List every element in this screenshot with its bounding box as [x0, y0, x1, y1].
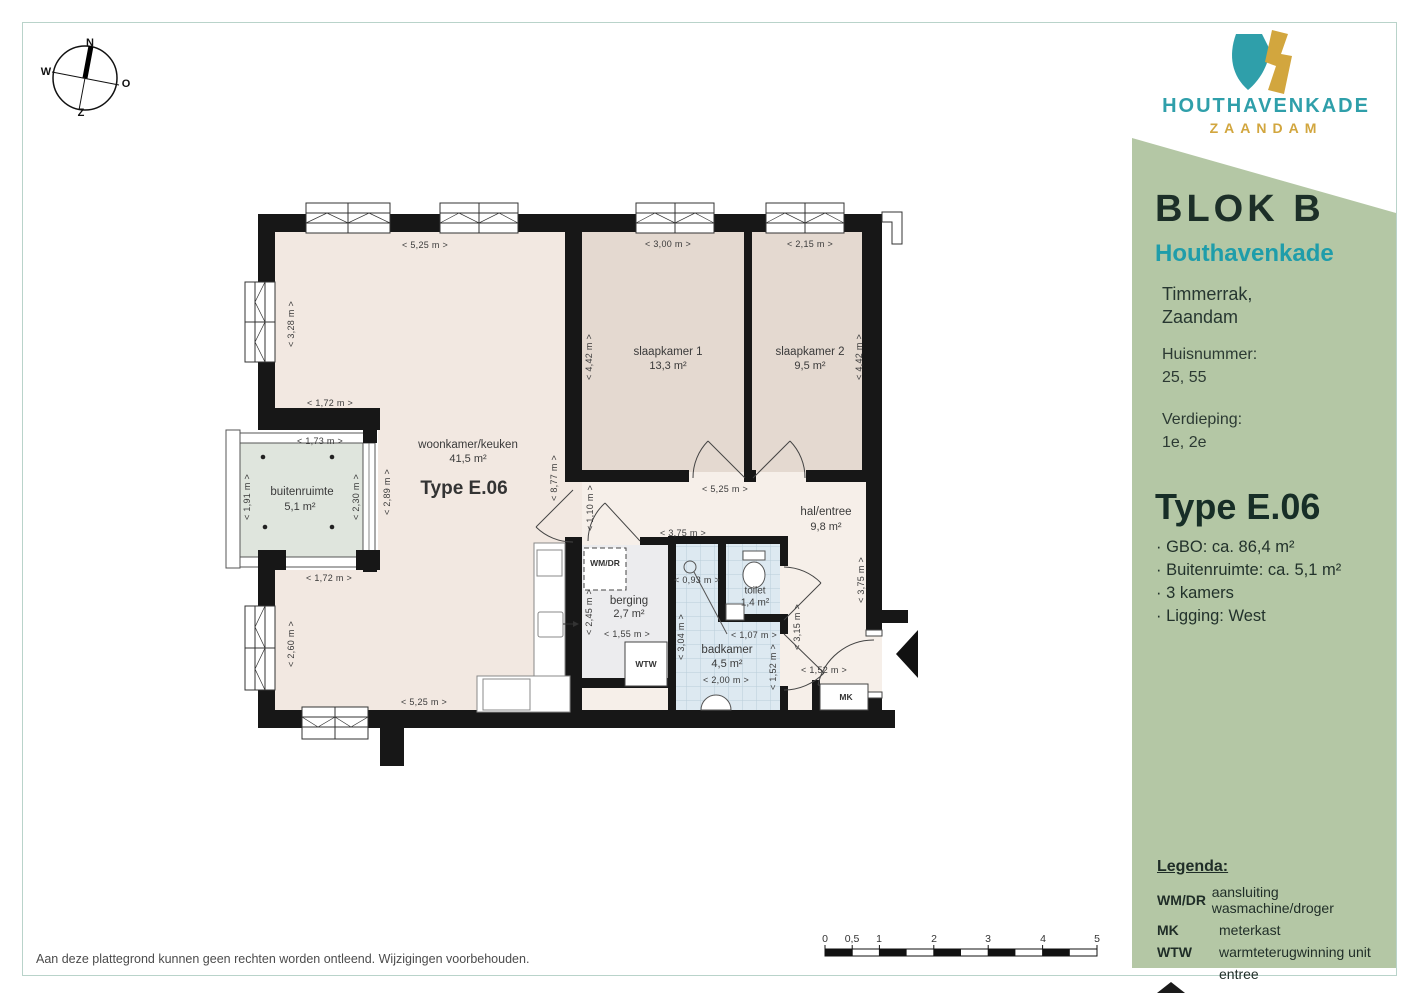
room-area-toilet: 1,4 m² [741, 598, 769, 609]
compass-south-label: Z [78, 107, 85, 119]
spec-buitenruimte: · Buitenruimte: ca. 5,1 m² [1156, 559, 1341, 582]
legend-desc-mk: meterkast [1219, 922, 1280, 938]
dim-balkon-boven: < 1,72 m > [307, 398, 353, 408]
logo-wordmark: HOUTHAVENKADE [1140, 95, 1392, 118]
huisnummer-value: 25, 55 [1162, 369, 1206, 387]
room-area-slaapkamer1: 13,3 m² [649, 360, 686, 372]
scale-bar: 0 0,5 1 2 3 4 5 [818, 933, 1108, 963]
verdieping-label: Verdieping: [1162, 411, 1242, 429]
project-location: Timmerrak, Zaandam [1162, 283, 1252, 329]
dim-douche-breedte: < 0,93 m > [674, 575, 720, 585]
fixture-label-wtw: WTW [635, 659, 656, 669]
compass-west-label: W [41, 66, 51, 78]
spec-gbo: · GBO: ca. 86,4 m² [1156, 536, 1341, 559]
dim-balkon-hoogte: < 2,89 m > [382, 469, 392, 515]
dim-top-woonkamer: < 5,25 m > [402, 240, 448, 250]
room-area-slaapkamer2: 9,5 m² [794, 360, 825, 372]
logo-city: ZAANDAM [1140, 120, 1392, 136]
scale-label-1: 1 [876, 933, 882, 945]
dim-berging-hoogte: < 2,45 m > [584, 589, 594, 635]
dim-hal-rechts: < 3,75 m > [856, 557, 866, 603]
spec-ligging: · Ligging: West [1156, 605, 1341, 628]
legend-desc-entree: entree [1219, 966, 1259, 982]
dim-balkon-rechts: < 2,30 m > [351, 474, 361, 520]
room-area-badkamer: 4,5 m² [711, 658, 742, 670]
compass-east-label: O [122, 78, 131, 90]
legend-key-mk: MK [1157, 922, 1219, 938]
legend-row-entree: entree [1157, 966, 1382, 982]
room-area-woonkamer: 41,5 m² [449, 453, 486, 465]
dim-top-slaapkamer1: < 3,00 m > [645, 239, 691, 249]
dim-bottom-woonkamer: < 5,25 m > [401, 697, 447, 707]
dim-badkamer-hoogte: < 3,04 m > [676, 614, 686, 660]
scale-label-3: 3 [985, 933, 991, 945]
legend-row-wtw: WTW warmteterugwinning unit [1157, 944, 1382, 960]
spec-kamers: · 3 kamers [1156, 582, 1341, 605]
legend-row-wmdr: WM/DR aansluiting wasmachine/droger [1157, 884, 1382, 916]
dim-slaapkamer1-hoogte: < 4,42 m > [584, 334, 594, 380]
disclaimer-text: Aan deze plattegrond kunnen geen rechten… [36, 952, 529, 966]
dim-badkamer-rechts: < 1,52 m > [768, 644, 778, 690]
dim-left-onder: < 2,60 m > [286, 621, 296, 667]
dim-slaapkamer2-hoogte: < 4,42 m > [854, 334, 864, 380]
type-specs: · GBO: ca. 86,4 m² · Buitenruimte: ca. 5… [1156, 536, 1341, 628]
dim-balkon-links: < 1,91 m > [242, 474, 252, 520]
room-label-woonkamer: woonkamer/keuken [418, 439, 518, 451]
room-label-slaapkamer2: slaapkamer 2 [775, 346, 844, 358]
dim-badkamer-boven: < 1,07 m > [731, 630, 777, 640]
legend-key-wmdr: WM/DR [1157, 892, 1212, 908]
legend: Legenda: WM/DR aansluiting wasmachine/dr… [1157, 858, 1382, 988]
room-label-toilet: toilet [744, 586, 765, 597]
verdieping-value: 1e, 2e [1162, 434, 1206, 452]
dim-badkamer-onder: < 2,00 m > [703, 675, 749, 685]
huisnummer-label: Huisnummer: [1162, 346, 1257, 364]
scale-label-0: 0 [822, 933, 828, 945]
scale-label-5: 5 [1094, 933, 1100, 945]
compass-rose [52, 46, 119, 110]
dim-hal-midden: < 3,15 m > [792, 604, 802, 650]
room-label-hal: hal/entree [800, 506, 851, 518]
dim-entree-breedte: < 1,52 m > [801, 665, 847, 675]
entree-arrow-icon [896, 630, 918, 678]
room-area-hal: 9,8 m² [810, 521, 841, 533]
dim-left-boven: < 3,28 m > [286, 301, 296, 347]
scale-label-4: 4 [1040, 933, 1046, 945]
fixture-label-mk: MK [839, 692, 852, 702]
legend-row-mk: MK meterkast [1157, 922, 1382, 938]
dim-berging-breedte: < 1,55 m > [604, 629, 650, 639]
compass-north-label: N [86, 37, 94, 49]
block-title: BLOK B [1155, 188, 1325, 231]
room-label-berging: berging [610, 595, 648, 607]
scale-label-05: 0,5 [845, 933, 860, 945]
dim-balkon-onder: < 1,72 m > [306, 573, 352, 583]
scale-bar-graphic [818, 945, 1108, 963]
dim-hal-links: < 1,10 m > [585, 485, 595, 531]
entree-triangle-icon [1157, 966, 1219, 982]
plan-type-label: Type E.06 [420, 478, 507, 500]
room-label-slaapkamer1: slaapkamer 1 [633, 346, 702, 358]
dim-top-slaapkamer2: < 2,15 m > [787, 239, 833, 249]
location-line2: Zaandam [1162, 306, 1252, 329]
room-area-buitenruimte: 5,1 m² [284, 501, 315, 513]
legend-key-wtw: WTW [1157, 944, 1219, 960]
room-area-berging: 2,7 m² [613, 608, 644, 620]
type-title: Type E.06 [1155, 486, 1320, 528]
dim-balkon-breedte: < 1,73 m > [297, 436, 343, 446]
room-label-buitenruimte: buitenruimte [270, 486, 333, 498]
legend-title: Legenda: [1157, 858, 1382, 876]
dim-woonkamer-hoogte: < 8,77 m > [549, 455, 559, 501]
fixture-label-wmdr: WM/DR [590, 558, 620, 568]
scale-label-2: 2 [931, 933, 937, 945]
dim-hal-breedte: < 5,25 m > [702, 484, 748, 494]
location-line1: Timmerrak, [1162, 283, 1252, 306]
floorplan-page: N W O Z woonkamer/keuken 41,5 m² Type E.… [0, 0, 1414, 1000]
project-name: Houthavenkade [1155, 240, 1334, 268]
legend-desc-wmdr: aansluiting wasmachine/droger [1212, 884, 1382, 916]
room-label-badkamer: badkamer [701, 644, 752, 656]
legend-desc-wtw: warmteterugwinning unit [1219, 944, 1371, 960]
dim-hal-lengte: < 3,75 m > [660, 528, 706, 538]
party-wall-stub [882, 212, 902, 244]
